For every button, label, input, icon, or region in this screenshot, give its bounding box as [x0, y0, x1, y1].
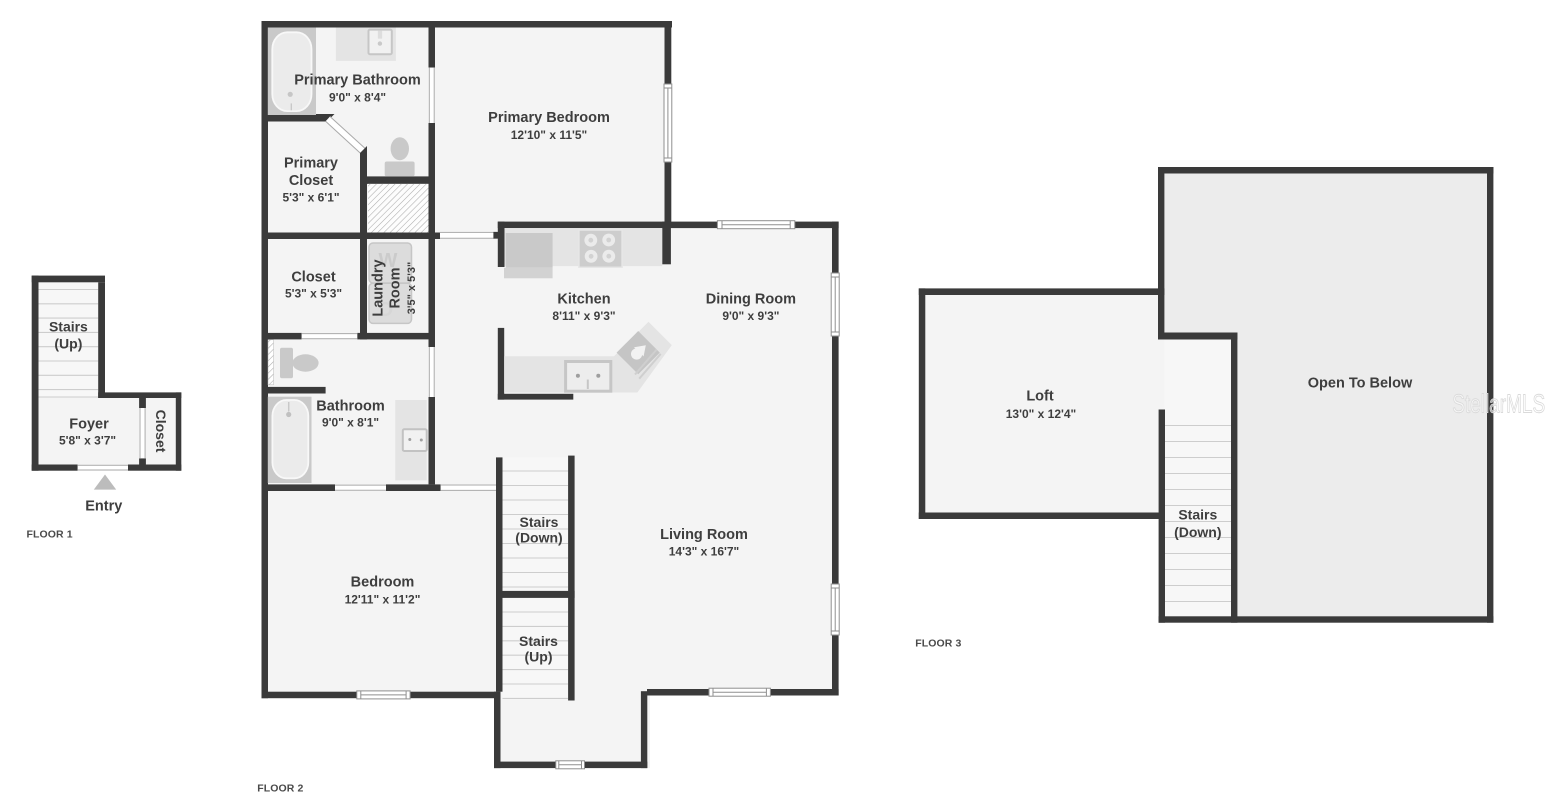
svg-text:14'3" x 16'7": 14'3" x 16'7"	[669, 545, 739, 559]
svg-text:Room: Room	[388, 267, 404, 308]
svg-text:Open To Below: Open To Below	[1308, 376, 1413, 392]
svg-text:(Down): (Down)	[1174, 524, 1221, 540]
svg-text:Living Room: Living Room	[660, 527, 748, 543]
svg-text:Closet: Closet	[291, 270, 335, 286]
svg-text:Primary: Primary	[284, 156, 338, 172]
svg-text:Bathroom: Bathroom	[316, 399, 384, 415]
svg-text:Foyer: Foyer	[69, 417, 109, 433]
svg-text:(Down): (Down)	[515, 530, 562, 546]
svg-text:Closet: Closet	[289, 173, 333, 189]
svg-text:Primary Bedroom: Primary Bedroom	[488, 110, 610, 126]
svg-text:13'0" x 12'4": 13'0" x 12'4"	[1006, 407, 1076, 421]
svg-text:Closet: Closet	[153, 410, 169, 453]
svg-text:5'3" x 5'3": 5'3" x 5'3"	[285, 287, 342, 301]
svg-text:Entry: Entry	[85, 499, 122, 515]
svg-text:Stairs: Stairs	[519, 633, 558, 649]
svg-text:Bedroom: Bedroom	[351, 575, 415, 591]
svg-text:9'0" x 8'4": 9'0" x 8'4"	[329, 91, 386, 105]
svg-text:5'3" x 6'1": 5'3" x 6'1"	[282, 191, 339, 205]
svg-text:8'11" x 9'3": 8'11" x 9'3"	[552, 309, 615, 323]
svg-text:12'11" x 11'2": 12'11" x 11'2"	[345, 593, 421, 607]
svg-text:9'0" x 8'1": 9'0" x 8'1"	[322, 416, 379, 430]
svg-text:12'10" x 11'5": 12'10" x 11'5"	[511, 128, 587, 142]
svg-text:FLOOR 1: FLOOR 1	[27, 529, 73, 541]
svg-text:FLOOR 2: FLOOR 2	[257, 783, 303, 795]
svg-text:FLOOR 3: FLOOR 3	[915, 638, 961, 650]
svg-text:StellarMLS: StellarMLS	[1452, 389, 1545, 419]
svg-text:(Up): (Up)	[54, 336, 82, 352]
svg-text:Stairs: Stairs	[520, 514, 559, 530]
svg-text:5'8" x 3'7": 5'8" x 3'7"	[59, 434, 116, 448]
svg-text:3'5" x 5'3": 3'5" x 5'3"	[406, 262, 418, 314]
svg-text:Laundry: Laundry	[371, 259, 387, 316]
svg-text:Primary Bathroom: Primary Bathroom	[294, 73, 421, 89]
svg-text:(Up): (Up)	[525, 649, 553, 665]
svg-text:Dining Room: Dining Room	[706, 292, 796, 308]
svg-text:Stairs: Stairs	[49, 319, 88, 335]
svg-text:Stairs: Stairs	[1178, 507, 1217, 523]
svg-text:Kitchen: Kitchen	[557, 292, 610, 308]
svg-text:9'0" x 9'3": 9'0" x 9'3"	[722, 309, 779, 323]
svg-text:Loft: Loft	[1026, 389, 1054, 405]
